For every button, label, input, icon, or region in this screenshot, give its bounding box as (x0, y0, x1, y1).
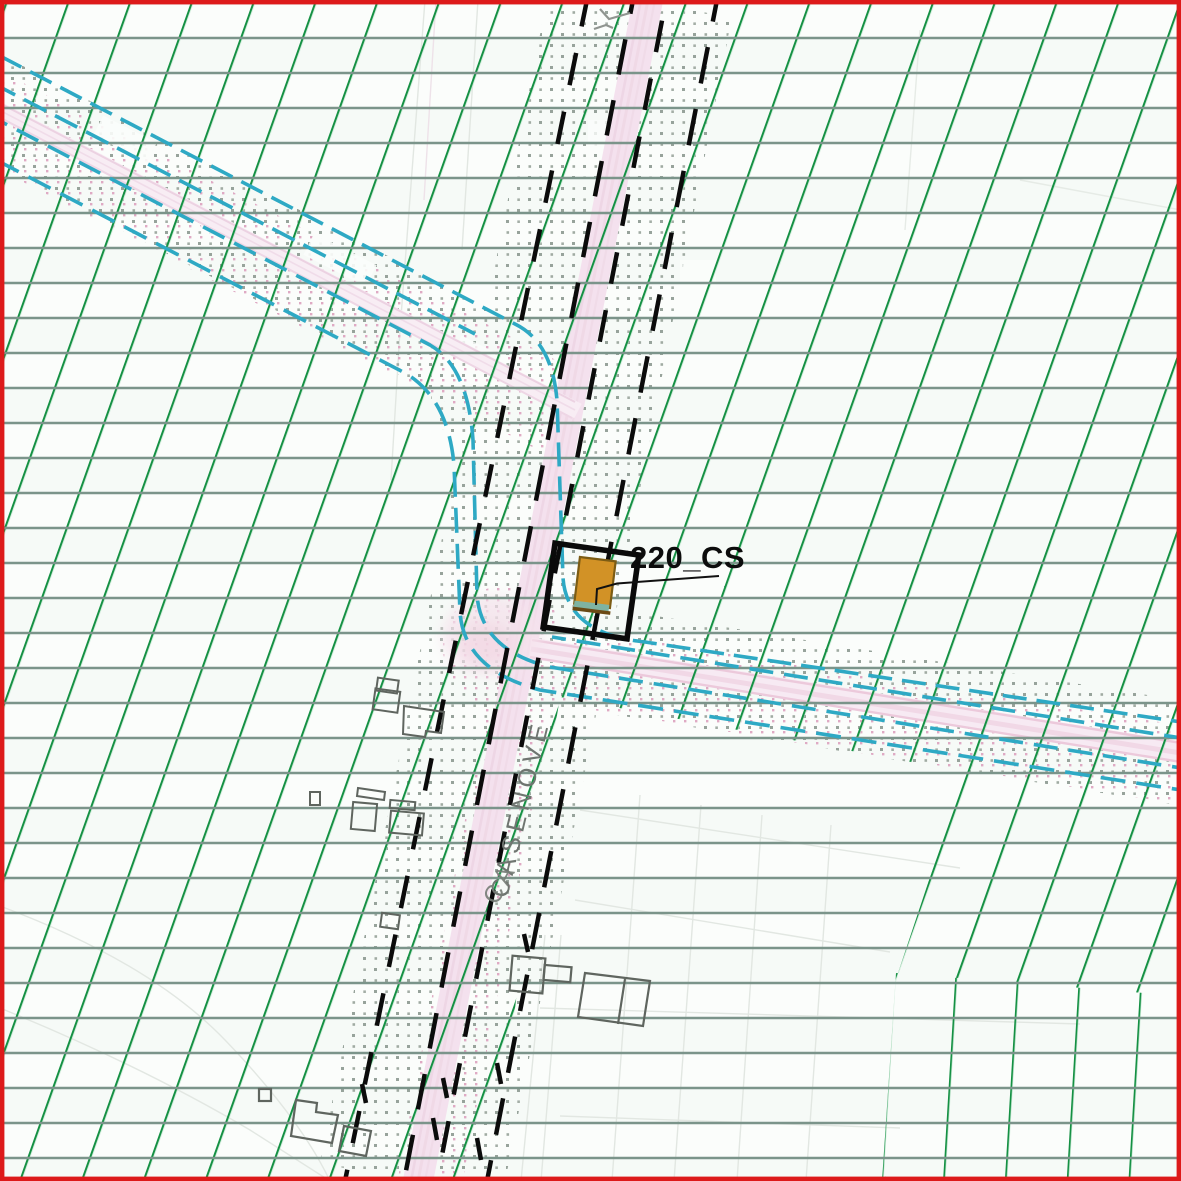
svg-text:220_CS: 220_CS (630, 540, 745, 575)
